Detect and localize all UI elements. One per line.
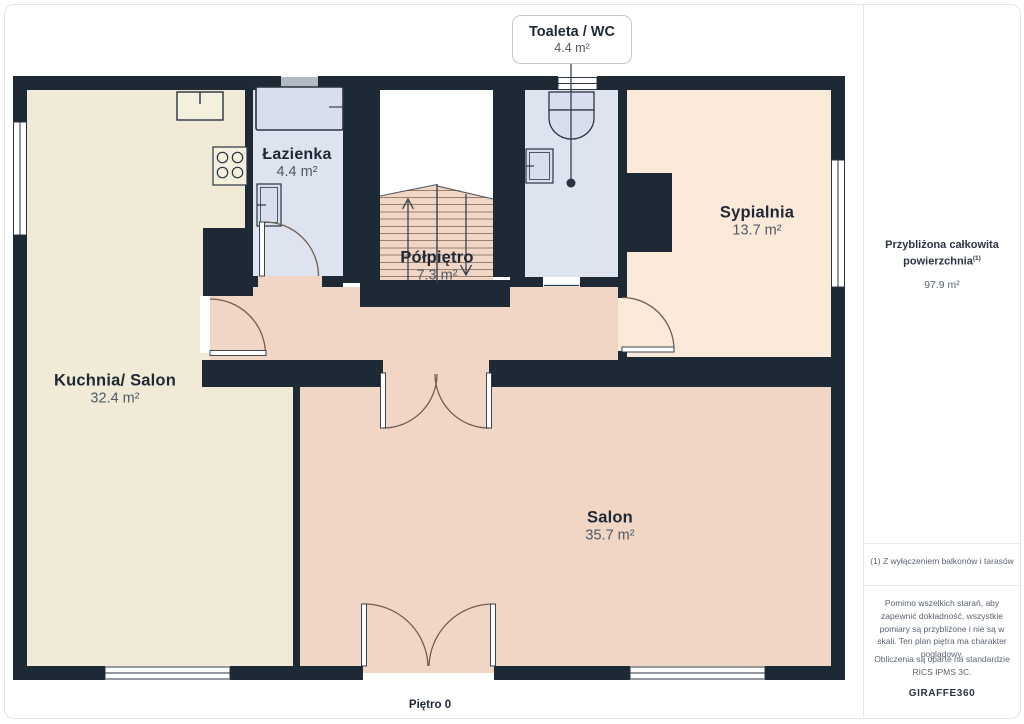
total-area-value: 97.9 m² [866, 279, 1018, 291]
wall-segment [510, 277, 543, 287]
brand-name: GIRAFFE [909, 688, 957, 699]
wall-segment [322, 276, 343, 287]
sidebar-section-divider [864, 543, 1020, 544]
room-area: 7.3 m² [400, 268, 473, 284]
room-floor-salon [300, 387, 831, 666]
callout-title: Toaleta / WC [529, 23, 615, 41]
wall-segment [580, 277, 618, 287]
vent-window [281, 77, 318, 89]
room-floor-wc [525, 90, 618, 277]
door-opening-salon [383, 360, 489, 387]
floor-caption: Piętro 0 [409, 699, 451, 711]
total-area-title-line2: powierzchnia [903, 256, 973, 268]
room-name: Sypialnia [720, 204, 794, 223]
total-area-footnote-marker: (1) [973, 255, 981, 262]
wall-segment [245, 90, 253, 230]
wall-segment [13, 235, 27, 680]
room-name: Łazienka [262, 146, 331, 164]
door-opening-bedroom [618, 298, 627, 351]
wall-segment [202, 360, 383, 387]
wall-segment [494, 666, 630, 680]
wall-segment [765, 666, 845, 680]
room-area: 32.4 m² [54, 391, 176, 407]
door-opening-bathroom [258, 276, 322, 287]
room-floor-lazienka [253, 90, 343, 278]
room-name: Kuchnia/ Salon [54, 372, 176, 391]
wall-segment [230, 666, 363, 680]
callout-area: 4.4 m² [554, 41, 589, 57]
sidebar-standard-note: Obliczenia są oparte na standardzie RICS… [869, 653, 1015, 679]
room-label-kuchnia: Kuchnia/ Salon 32.4 m² [54, 372, 176, 407]
wall-segment [13, 76, 27, 122]
door-opening-kitchen [200, 296, 210, 353]
wall-segment [13, 76, 281, 90]
wall-segment [831, 287, 845, 680]
wall-segment [618, 173, 672, 252]
brand-number: 360 [957, 688, 976, 699]
room-label-lazienka: Łazienka 4.4 m² [262, 146, 331, 180]
room-area: 4.4 m² [262, 164, 331, 180]
total-area-block: Przybliżona całkowita powierzchnia(1) 97… [866, 238, 1018, 291]
wall-segment [493, 90, 525, 277]
sidebar-section-divider [864, 585, 1020, 586]
wall-segment [13, 666, 105, 680]
brand-logo: GIRAFFE360 [866, 688, 1018, 699]
door-opening-terrace [363, 666, 494, 673]
room-name: Półpiętro [400, 249, 473, 268]
room-label-polpietro: Półpiętro 7.3 m² [400, 249, 473, 284]
room-name: Salon [585, 509, 634, 528]
room-label-sypialnia: Sypialnia 13.7 m² [720, 204, 794, 239]
total-area-title-line1: Przybliżona całkowita [885, 239, 999, 251]
total-area-title: Przybliżona całkowita powierzchnia(1) [866, 238, 1018, 271]
wall-segment [489, 360, 618, 387]
sidebar-footnote: (1) Z wyłączeniem balkonów i tarasów [864, 556, 1020, 566]
wall-segment [360, 280, 510, 307]
wall-segment [293, 387, 300, 666]
wall-segment [597, 76, 845, 90]
room-area: 35.7 m² [585, 528, 634, 544]
wall-segment [831, 76, 845, 160]
room-label-salon: Salon 35.7 m² [585, 509, 634, 544]
wall-segment [318, 76, 558, 90]
callout-toaleta: Toaleta / WC 4.4 m² [512, 15, 632, 64]
wall-segment [343, 90, 380, 283]
wall-segment [245, 276, 258, 287]
floorplan-page: { "page": { "floor_label": "Piętro 0" },… [0, 0, 1024, 724]
room-area: 13.7 m² [720, 223, 794, 239]
wall-segment [618, 357, 831, 387]
sidebar-disclaimer: Pomimo wszelkich starań, aby zapewnić do… [869, 597, 1015, 661]
sidebar-divider [863, 4, 864, 717]
